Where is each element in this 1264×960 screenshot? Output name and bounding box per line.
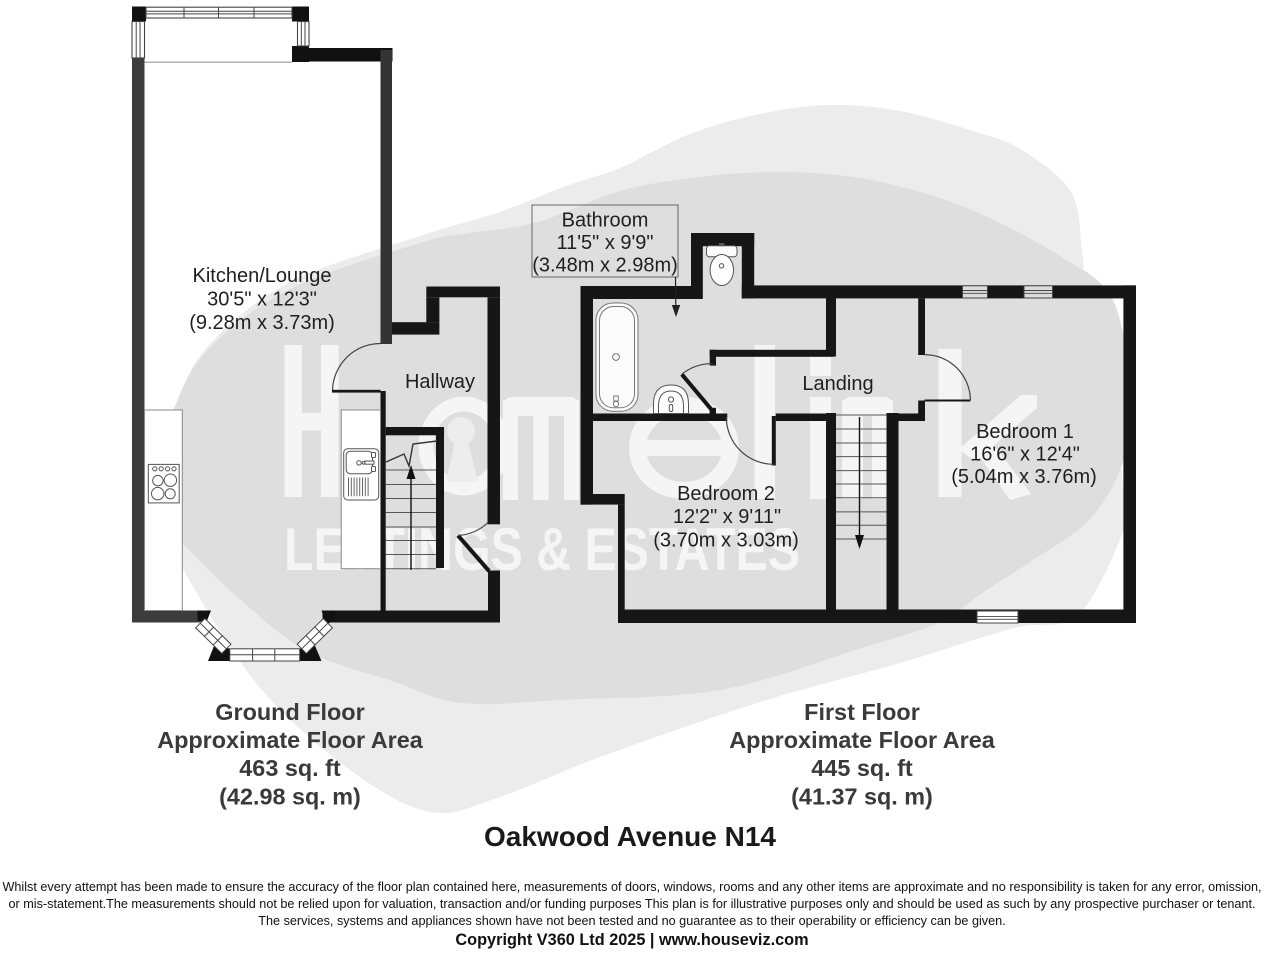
- svg-text:Whilst every attempt has been: Whilst every attempt has been made to en…: [2, 880, 1261, 894]
- svg-text:or mis-statement.The measureme: or mis-statement.The measurements should…: [9, 897, 1256, 911]
- svg-text:(5.04m x 3.76m): (5.04m x 3.76m): [951, 466, 1097, 488]
- svg-text:12'2" x 9'11": 12'2" x 9'11": [673, 506, 781, 528]
- svg-text:Landing: Landing: [802, 373, 873, 395]
- svg-text:Bathroom: Bathroom: [562, 210, 649, 232]
- svg-text:Bedroom 2: Bedroom 2: [677, 483, 775, 505]
- svg-text:Bedroom 1: Bedroom 1: [976, 421, 1074, 443]
- svg-text:463 sq. ft: 463 sq. ft: [239, 755, 341, 781]
- svg-text:(3.70m x 3.03m): (3.70m x 3.03m): [653, 530, 799, 552]
- svg-text:16'6" x 12'4": 16'6" x 12'4": [970, 444, 1080, 466]
- svg-text:445 sq. ft: 445 sq. ft: [811, 755, 913, 781]
- svg-text:Approximate Floor Area: Approximate Floor Area: [157, 727, 424, 753]
- svg-text:Ground Floor: Ground Floor: [215, 699, 364, 725]
- svg-text:(42.98 sq. m): (42.98 sq. m): [219, 784, 361, 810]
- svg-text:Hallway: Hallway: [405, 371, 475, 393]
- svg-text:Oakwood Avenue N14: Oakwood Avenue N14: [484, 821, 776, 852]
- svg-text:Approximate Floor Area: Approximate Floor Area: [729, 727, 996, 753]
- svg-text:First Floor: First Floor: [804, 699, 920, 725]
- svg-text:11'5" x 9'9": 11'5" x 9'9": [556, 232, 653, 254]
- svg-text:Copyright V360 Ltd 2025 | www.: Copyright V360 Ltd 2025 | www.houseviz.c…: [455, 931, 808, 949]
- svg-text:30'5" x 12'3": 30'5" x 12'3": [207, 289, 317, 311]
- svg-text:Kitchen/Lounge: Kitchen/Lounge: [192, 265, 331, 287]
- svg-text:(41.37 sq. m): (41.37 sq. m): [791, 784, 933, 810]
- svg-text:The services, systems and appl: The services, systems and appliances sho…: [258, 914, 1005, 928]
- svg-text:(9.28m x 3.73m): (9.28m x 3.73m): [189, 312, 335, 334]
- svg-text:(3.48m x 2.98m): (3.48m x 2.98m): [532, 255, 678, 277]
